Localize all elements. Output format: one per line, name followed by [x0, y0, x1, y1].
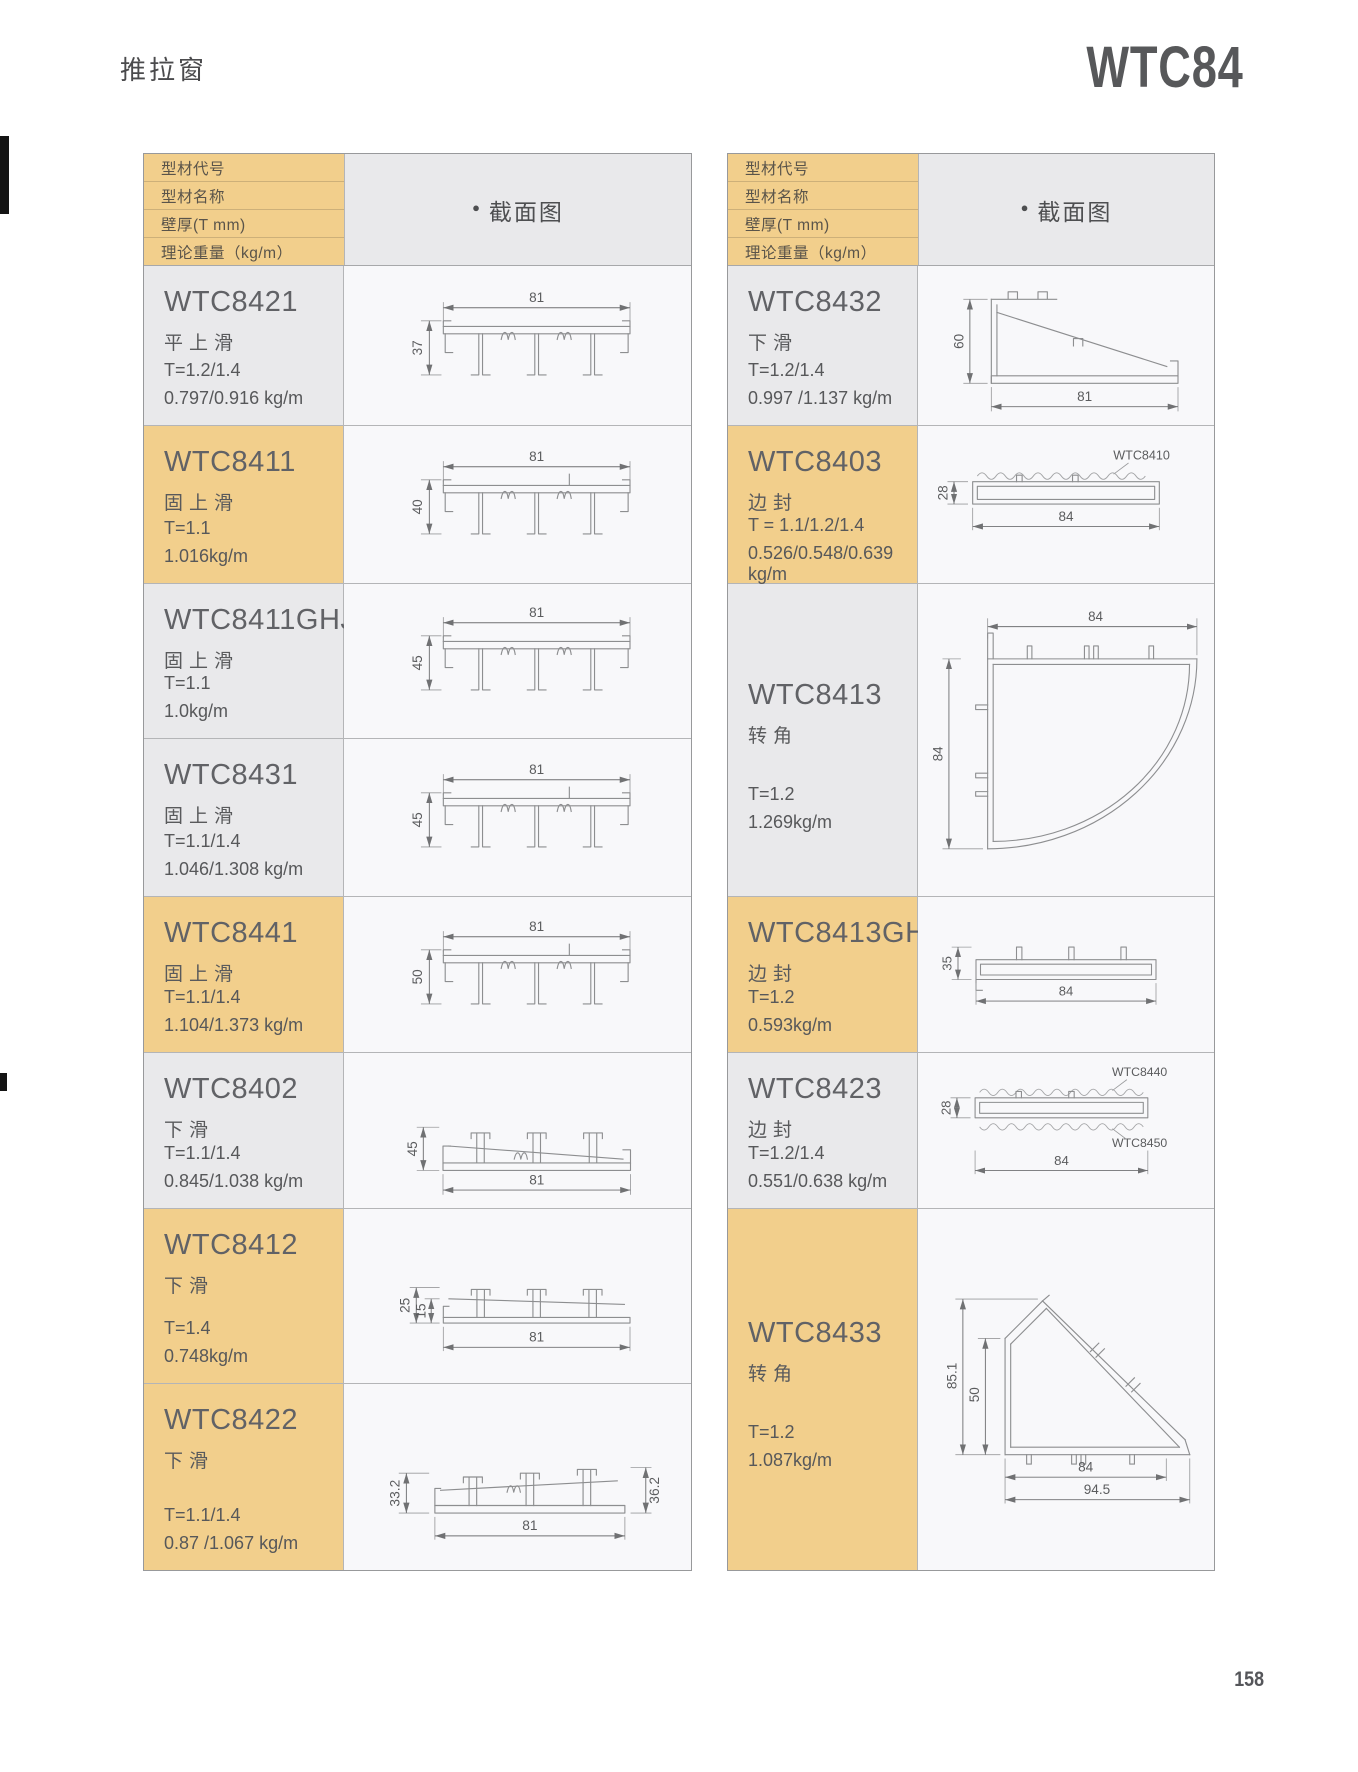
- header-profile-name: 型材名称: [728, 182, 918, 210]
- table-row: WTC8432 下滑 T=1.2/1.4 0.997 /1.137 kg/m 6…: [728, 266, 1214, 426]
- dimension-label: 45: [409, 812, 424, 827]
- profile-code: WTC8423: [748, 1073, 909, 1106]
- profile-weight: 0.845/1.038 kg/m: [164, 1171, 335, 1192]
- series-title: WTC84: [1087, 34, 1244, 101]
- dimension-label: 33.2: [387, 1480, 402, 1507]
- profile-thickness: T=1.1: [164, 673, 335, 694]
- profile-weight: 0.551/0.638 kg/m: [748, 1171, 909, 1192]
- profile-weight: 0.748kg/m: [164, 1346, 335, 1367]
- dimension-label: 84: [930, 746, 945, 761]
- page-category: 推拉窗: [120, 50, 207, 87]
- header-cross-section: ● 截面图: [344, 154, 691, 265]
- profile-code: WTC8431: [164, 759, 335, 792]
- table-row: WTC8411 固上滑 T=1.1 1.016kg/m 81 40: [144, 426, 691, 584]
- profile-code: WTC8422: [164, 1404, 335, 1437]
- print-bleed-mark: [0, 136, 9, 214]
- print-bleed-mark: [0, 1073, 7, 1091]
- profile-weight: 0.87 /1.067 kg/m: [164, 1533, 335, 1554]
- profile-info-cell: WTC8431 固上滑 T=1.1/1.4 1.046/1.308 kg/m: [144, 739, 344, 896]
- profile-weight: 1.046/1.308 kg/m: [164, 859, 335, 880]
- cross-section-cell: 35 84: [918, 897, 1214, 1052]
- profile-code: WTC8432: [748, 286, 909, 319]
- cross-section-cell: WTC8440 WTC8450 28 84: [918, 1053, 1214, 1208]
- header-theoretical-weight: 理论重量（kg/m）: [728, 238, 918, 265]
- cross-section-cell: 45 81: [344, 1053, 691, 1208]
- dimension-label: 60: [951, 333, 966, 348]
- cross-section-cell: 25 15 81: [344, 1209, 691, 1383]
- profile-name: 固上滑: [164, 801, 335, 828]
- cross-section-diagram: 81 45: [373, 748, 663, 888]
- header-labels: 型材代号 型材名称 壁厚(T mm) 理论重量（kg/m）: [144, 154, 344, 265]
- profile-thickness: T=1.1/1.4: [164, 1505, 335, 1526]
- dimension-label: 28: [935, 485, 950, 500]
- profile-info-cell: WTC8412 下滑 T=1.4 0.748kg/m: [144, 1209, 344, 1383]
- profile-code: WTC8421: [164, 286, 335, 319]
- profile-weight: 0.997 /1.137 kg/m: [748, 388, 909, 409]
- dimension-label: 94.5: [1084, 1482, 1110, 1497]
- profile-info-cell: WTC8413GHJ 边封 T=1.2 0.593kg/m: [728, 897, 918, 1052]
- dimension-label: 45: [409, 655, 424, 670]
- mating-profile-label: WTC8410: [1113, 448, 1170, 462]
- cross-section-cell: 81 45: [344, 739, 691, 896]
- cross-section-diagram: 84 84: [919, 600, 1214, 880]
- cross-section-diagram: 81 40: [373, 435, 663, 575]
- profile-name: 下滑: [164, 1446, 335, 1473]
- dimension-label: 25: [397, 1298, 412, 1313]
- dimension-label: 81: [529, 290, 544, 305]
- cross-section-diagram: 60 81: [926, 271, 1206, 421]
- cross-section-label: 截面图: [1037, 193, 1112, 227]
- dimension-label: 50: [409, 969, 424, 984]
- dimension-label: 81: [529, 1330, 544, 1345]
- dimension-label: 36.2: [647, 1477, 662, 1504]
- header-profile-name: 型材名称: [144, 182, 344, 210]
- table-row: WTC8403 边封 T = 1.1/1.2/1.4 0.526/0.548/0…: [728, 426, 1214, 584]
- profile-weight: 1.087kg/m: [748, 1450, 909, 1471]
- profile-code: WTC8403: [748, 446, 909, 479]
- table-row: WTC8422 下滑 T=1.1/1.4 0.87 /1.067 kg/m 33…: [144, 1384, 691, 1570]
- dimension-label: 84: [1078, 1459, 1094, 1474]
- profile-weight: 0.593kg/m: [748, 1015, 909, 1036]
- header-profile-code: 型材代号: [728, 154, 918, 182]
- cross-section-cell: 85.1 50: [918, 1209, 1214, 1570]
- table-row: WTC8412 下滑 T=1.4 0.748kg/m 25 15: [144, 1209, 691, 1384]
- profile-thickness: T=1.2/1.4: [164, 360, 335, 381]
- dimension-label: 81: [529, 605, 544, 620]
- profile-thickness: T=1.1/1.4: [164, 831, 335, 852]
- cross-section-diagram: 35 84: [924, 907, 1209, 1042]
- dimension-label: 81: [529, 919, 544, 934]
- profile-name: 固上滑: [164, 488, 335, 515]
- cross-section-diagram: 81 50: [373, 905, 663, 1045]
- dimension-label: 81: [1077, 389, 1092, 404]
- profile-code: WTC8402: [164, 1073, 335, 1106]
- table-header: 型材代号 型材名称 壁厚(T mm) 理论重量（kg/m） ● 截面图: [728, 154, 1214, 266]
- profile-name: 边封: [748, 488, 909, 515]
- table-row: WTC8431 固上滑 T=1.1/1.4 1.046/1.308 kg/m 8…: [144, 739, 691, 897]
- profile-info-cell: WTC8421 平上滑 T=1.2/1.4 0.797/0.916 kg/m: [144, 266, 344, 425]
- profile-weight: 1.104/1.373 kg/m: [164, 1015, 335, 1036]
- profile-info-cell: WTC8403 边封 T = 1.1/1.2/1.4 0.526/0.548/0…: [728, 426, 918, 583]
- mating-profile-label: WTC8440: [1112, 1065, 1167, 1079]
- dimension-label: 85.1: [944, 1362, 959, 1388]
- cross-section-cell: 84 84: [918, 584, 1214, 896]
- profile-name: 转角: [748, 1359, 909, 1386]
- profile-weight: 1.269kg/m: [748, 812, 909, 833]
- table-row: WTC8413 转角 T=1.2 1.269kg/m 84 84: [728, 584, 1214, 897]
- mating-profile-label: WTC8450: [1112, 1135, 1167, 1149]
- cross-section-diagram: 81 37: [373, 276, 663, 416]
- cross-section-cell: 33.2 36.2 81: [344, 1384, 691, 1570]
- dimension-label: 81: [529, 762, 544, 777]
- profile-name: 下滑: [164, 1271, 335, 1298]
- profile-table-right: 型材代号 型材名称 壁厚(T mm) 理论重量（kg/m） ● 截面图 WTC8…: [727, 153, 1215, 1571]
- profile-name: 边封: [748, 959, 909, 986]
- page-number: 158: [1234, 1668, 1264, 1692]
- profile-name: 平上滑: [164, 328, 335, 355]
- profile-info-cell: WTC8402 下滑 T=1.1/1.4 0.845/1.038 kg/m: [144, 1053, 344, 1208]
- dimension-label: 37: [409, 340, 424, 355]
- cross-section-diagram: 45 81: [373, 1056, 663, 1206]
- profile-code: WTC8411GHJ: [164, 604, 335, 637]
- profile-thickness: T=1.2: [748, 784, 909, 805]
- cross-section-cell: 81 45: [344, 584, 691, 738]
- profile-code: WTC8433: [748, 1317, 909, 1350]
- profile-name: 下滑: [164, 1115, 335, 1142]
- dimension-label: 15: [413, 1303, 428, 1318]
- profile-info-cell: WTC8413 转角 T=1.2 1.269kg/m: [728, 584, 918, 896]
- dimension-label: 40: [409, 499, 424, 514]
- dimension-label: 35: [940, 956, 955, 971]
- profile-name: 转角: [748, 721, 909, 748]
- profile-thickness: T=1.2/1.4: [748, 360, 909, 381]
- cross-section-diagram: 33.2 36.2 81: [368, 1401, 668, 1553]
- table-row: WTC8423 边封 T=1.2/1.4 0.551/0.638 kg/m WT…: [728, 1053, 1214, 1209]
- dimension-label: 84: [1054, 1153, 1069, 1168]
- profile-name: 固上滑: [164, 959, 335, 986]
- profile-thickness: T=1.2: [748, 987, 909, 1008]
- cross-section-cell: 81 50: [344, 897, 691, 1052]
- profile-thickness: T=1.2/1.4: [748, 1143, 909, 1164]
- table-row: WTC8433 转角 T=1.2 1.087kg/m 85.1 50: [728, 1209, 1214, 1570]
- profile-code: WTC8413GHJ: [748, 917, 909, 950]
- header-cross-section: ● 截面图: [918, 154, 1214, 265]
- profile-info-cell: WTC8411 固上滑 T=1.1 1.016kg/m: [144, 426, 344, 583]
- profile-code: WTC8411: [164, 446, 335, 479]
- dimension-label: 45: [404, 1141, 419, 1156]
- table-row: WTC8441 固上滑 T=1.1/1.4 1.104/1.373 kg/m 8…: [144, 897, 691, 1053]
- dimension-label: 84: [1088, 609, 1103, 624]
- profile-weight: 1.0kg/m: [164, 701, 335, 722]
- cross-section-diagram: WTC8440 WTC8450 28 84: [921, 1056, 1211, 1206]
- cross-section-diagram: WTC8410 28 84: [921, 435, 1211, 575]
- dimension-label: 81: [529, 449, 544, 464]
- cross-section-cell: 81 40: [344, 426, 691, 583]
- profile-thickness: T=1.1: [164, 518, 335, 539]
- header-wall-thickness: 壁厚(T mm): [144, 210, 344, 238]
- header-theoretical-weight: 理论重量（kg/m）: [144, 238, 344, 265]
- profile-weight: 0.797/0.916 kg/m: [164, 388, 335, 409]
- profile-info-cell: WTC8423 边封 T=1.2/1.4 0.551/0.638 kg/m: [728, 1053, 918, 1208]
- table-row: WTC8402 下滑 T=1.1/1.4 0.845/1.038 kg/m 45: [144, 1053, 691, 1209]
- profile-code: WTC8441: [164, 917, 335, 950]
- profile-thickness: T=1.2: [748, 1422, 909, 1443]
- profile-info-cell: WTC8441 固上滑 T=1.1/1.4 1.104/1.373 kg/m: [144, 897, 344, 1052]
- header-wall-thickness: 壁厚(T mm): [728, 210, 918, 238]
- dimension-label: 84: [1058, 508, 1074, 523]
- dimension-label: 84: [1059, 983, 1074, 998]
- cross-section-diagram: 85.1 50: [916, 1240, 1216, 1540]
- profile-name: 边封: [748, 1115, 909, 1142]
- table-row: WTC8413GHJ 边封 T=1.2 0.593kg/m 35: [728, 897, 1214, 1053]
- profile-thickness: T=1.1/1.4: [164, 987, 335, 1008]
- bullet-icon: ●: [472, 200, 482, 215]
- profile-code: WTC8413: [748, 679, 909, 712]
- header-profile-code: 型材代号: [144, 154, 344, 182]
- table-row: WTC8411GHJ 固上滑 T=1.1 1.0kg/m 81 45: [144, 584, 691, 739]
- table-row: WTC8421 平上滑 T=1.2/1.4 0.797/0.916 kg/m 8…: [144, 266, 691, 426]
- profile-weight: 1.016kg/m: [164, 546, 335, 567]
- profile-info-cell: WTC8432 下滑 T=1.2/1.4 0.997 /1.137 kg/m: [728, 266, 918, 425]
- profile-code: WTC8412: [164, 1229, 335, 1262]
- profile-info-cell: WTC8433 转角 T=1.2 1.087kg/m: [728, 1209, 918, 1570]
- dimension-label: 50: [967, 1386, 982, 1402]
- cross-section-diagram: 25 15 81: [373, 1226, 663, 1366]
- profile-weight: 0.526/0.548/0.639 kg/m: [748, 543, 909, 585]
- dimension-label: 81: [529, 1172, 544, 1187]
- table-header: 型材代号 型材名称 壁厚(T mm) 理论重量（kg/m） ● 截面图: [144, 154, 691, 266]
- profile-name: 固上滑: [164, 646, 335, 673]
- dimension-label: 28: [939, 1100, 954, 1115]
- profile-info-cell: WTC8422 下滑 T=1.1/1.4 0.87 /1.067 kg/m: [144, 1384, 344, 1570]
- cross-section-diagram: 81 45: [373, 591, 663, 731]
- cross-section-cell: WTC8410 28 84: [918, 426, 1214, 583]
- profile-thickness: T=1.1/1.4: [164, 1143, 335, 1164]
- cross-section-cell: 81 37: [344, 266, 691, 425]
- catalog-page: 推拉窗 WTC84 158 型材代号 型材名称 壁厚(T mm) 理论重量（kg…: [0, 0, 1358, 1772]
- profile-thickness: T=1.4: [164, 1318, 335, 1339]
- cross-section-label: 截面图: [489, 193, 564, 227]
- dimension-label: 81: [522, 1518, 537, 1533]
- bullet-icon: ●: [1021, 200, 1031, 215]
- cross-section-cell: 60 81: [918, 266, 1214, 425]
- profile-thickness: T = 1.1/1.2/1.4: [748, 515, 909, 536]
- profile-name: 下滑: [748, 328, 909, 355]
- profile-table-left: 型材代号 型材名称 壁厚(T mm) 理论重量（kg/m） ● 截面图 WTC8…: [143, 153, 692, 1571]
- profile-info-cell: WTC8411GHJ 固上滑 T=1.1 1.0kg/m: [144, 584, 344, 738]
- header-labels: 型材代号 型材名称 壁厚(T mm) 理论重量（kg/m）: [728, 154, 918, 265]
